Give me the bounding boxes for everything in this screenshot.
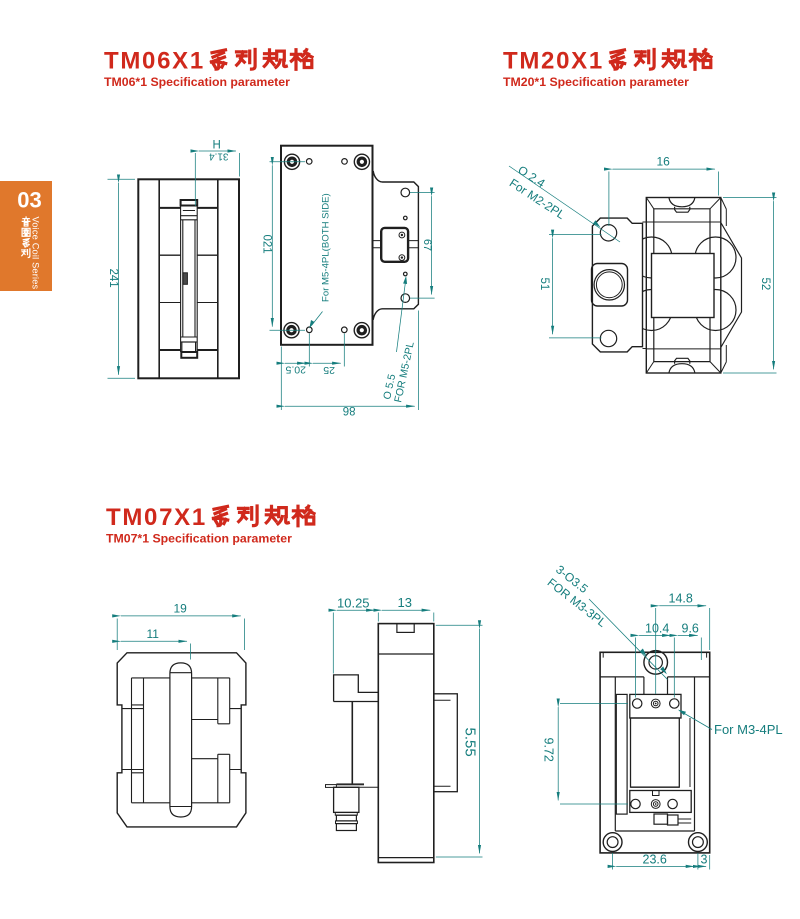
svg-text:19: 19 — [174, 602, 188, 616]
svg-text:23.6: 23.6 — [643, 853, 667, 867]
svg-text:TM07*1 Specification parameter: TM07*1 Specification parameter — [106, 532, 292, 546]
svg-text:H: H — [213, 140, 221, 152]
svg-text:TM20X1: TM20X1 — [503, 48, 604, 75]
svg-text:13: 13 — [398, 595, 412, 610]
svg-text:TM06*1 Specification parameter: TM06*1 Specification parameter — [104, 75, 290, 89]
svg-text:3: 3 — [701, 853, 708, 867]
svg-text:10.25: 10.25 — [337, 596, 370, 611]
svg-text:11: 11 — [147, 627, 160, 641]
svg-text:14.8: 14.8 — [669, 592, 693, 606]
svg-text:16: 16 — [657, 155, 671, 169]
svg-text:20.5: 20.5 — [285, 364, 306, 376]
svg-text:Voice Coil Series: Voice Coil Series — [31, 217, 41, 290]
svg-text:86: 86 — [343, 404, 356, 416]
svg-text:9.6: 9.6 — [682, 622, 699, 636]
svg-text:For M3-4PL: For M3-4PL — [714, 722, 783, 737]
svg-text:67: 67 — [421, 239, 433, 251]
svg-text:TM07X1: TM07X1 — [106, 504, 207, 531]
svg-text:10.4: 10.4 — [645, 622, 669, 636]
svg-text:9.72: 9.72 — [542, 738, 556, 762]
svg-text:03: 03 — [17, 188, 41, 213]
svg-text:021: 021 — [261, 235, 273, 254]
svg-text:51: 51 — [538, 278, 550, 291]
svg-text:For M5-4PL(BOTH SIDE): For M5-4PL(BOTH SIDE) — [320, 193, 331, 302]
svg-text:TM06X1: TM06X1 — [104, 48, 205, 75]
svg-text:25: 25 — [323, 364, 335, 376]
svg-text:52: 52 — [759, 278, 771, 291]
svg-text:241: 241 — [107, 269, 119, 288]
svg-text:TM20*1 Specification parameter: TM20*1 Specification parameter — [503, 75, 689, 89]
svg-text:31.4: 31.4 — [209, 151, 229, 162]
svg-text:5.55: 5.55 — [462, 728, 479, 757]
